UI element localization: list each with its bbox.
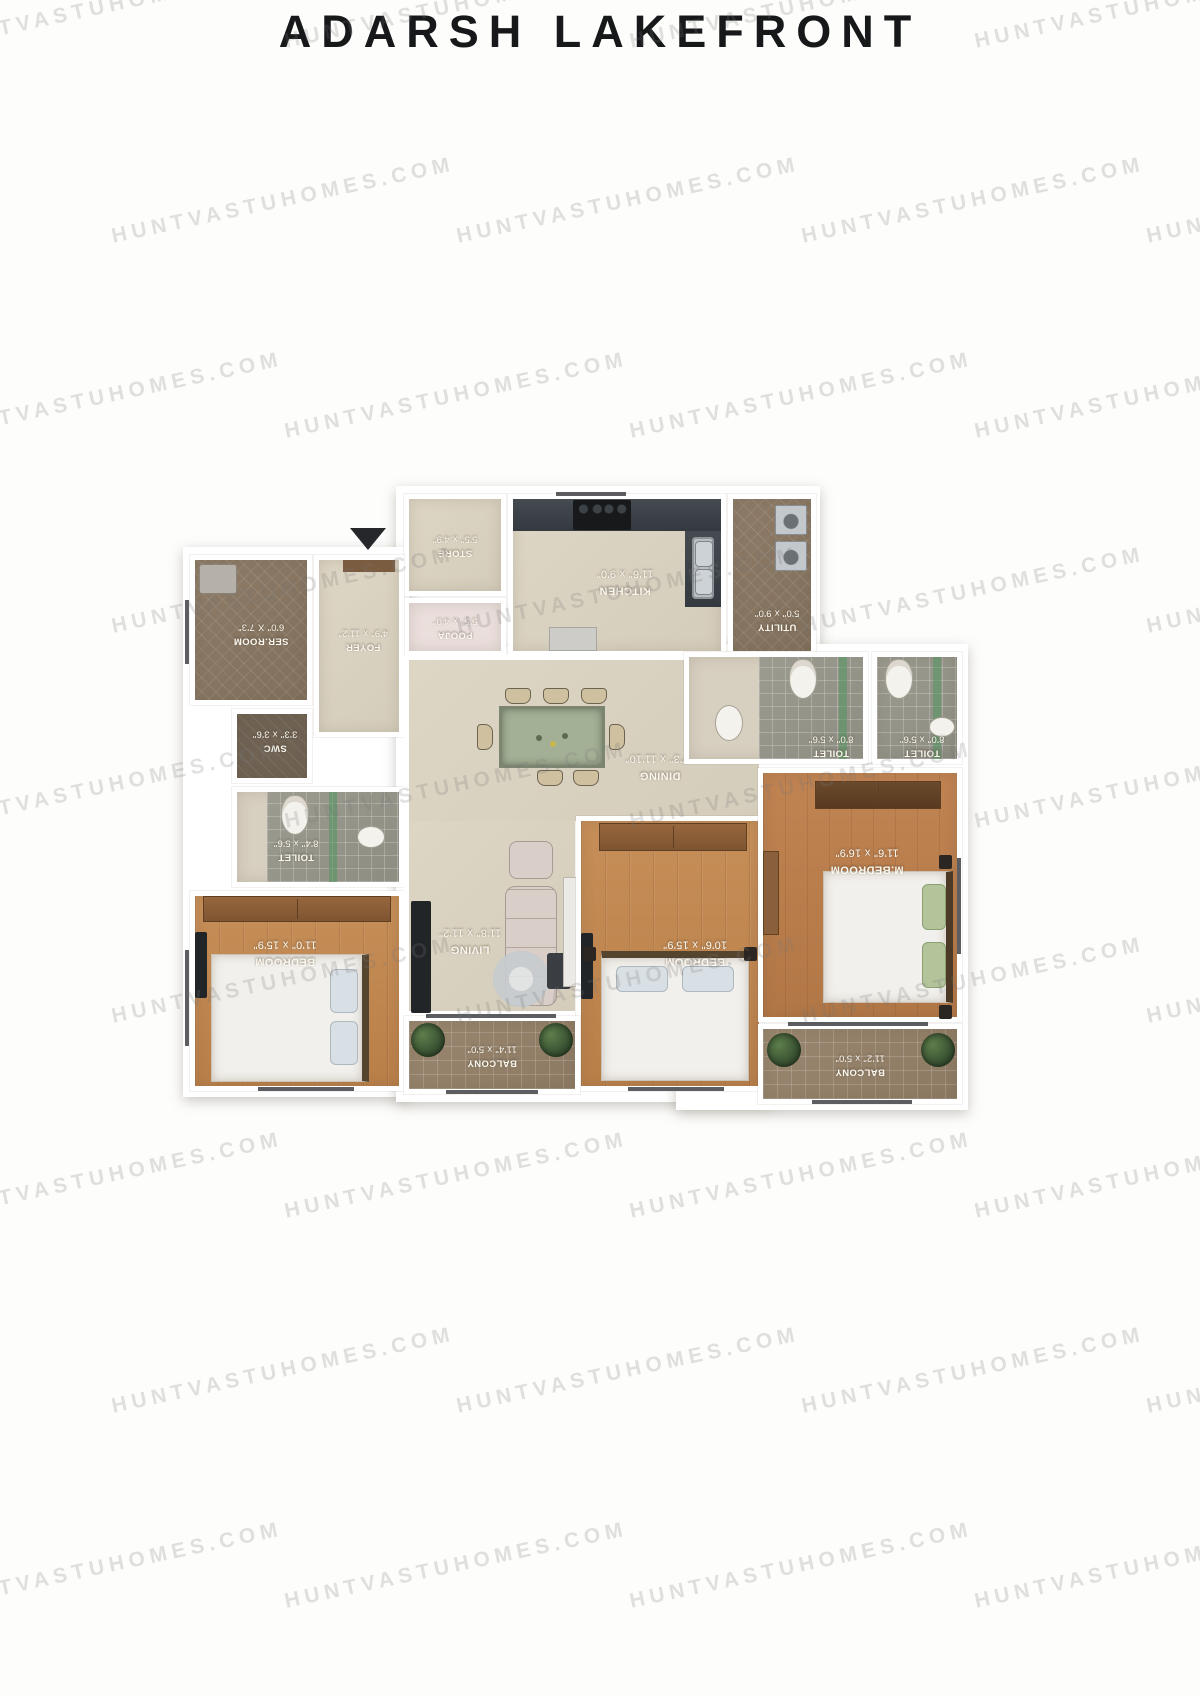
room-living-dims: 11'8" x 11'2"	[439, 925, 502, 942]
rug	[493, 951, 549, 1007]
dining-chair	[581, 688, 607, 704]
room-toilet-common-name: TOILET	[809, 745, 854, 759]
room-swc: SWC 3'3" x 3'6"	[232, 709, 312, 783]
dining-chair	[477, 724, 493, 750]
bed	[601, 951, 749, 1081]
pillow	[330, 1021, 358, 1065]
room-store-label: STORE 5'5" x 4'9"	[433, 531, 478, 560]
wardrobe	[203, 896, 391, 922]
kitchen-island	[549, 627, 597, 651]
window	[185, 950, 189, 1046]
tv-unit	[581, 933, 593, 999]
cot	[199, 564, 237, 594]
room-toilet-common-dims: 8'0" x 5'6"	[809, 731, 854, 745]
bed	[211, 954, 369, 1082]
tv-unit	[411, 901, 431, 1013]
room-pooja-name: POOJA	[433, 627, 478, 641]
dining-chair	[573, 770, 599, 786]
plant	[767, 1033, 801, 1067]
room-toilet-master-name: TOILET	[900, 745, 945, 759]
room-master-bedroom: M.BEDROOM 11'6" x 16'9"	[758, 768, 962, 1022]
room-pooja-label: POOJA 5'5" x 4'0"	[433, 613, 478, 642]
room-servant-dims: 6'0" X 7'3"	[234, 619, 289, 633]
room-balcony-right-dims: 11'2" x 5'0"	[835, 1050, 885, 1064]
room-toilet-common: TOILET 8'0" x 5'6"	[684, 652, 868, 764]
room-balcony-right-name: BALCONY	[835, 1064, 885, 1078]
room-servant-name: SER.ROOM	[234, 633, 289, 647]
room-bedroom-left-label: BEDROOM 11'0" x 15'9"	[253, 937, 316, 970]
room-utility-dims: 5'0" x 9'0"	[755, 605, 800, 619]
room-kitchen-name: KITCHEN	[597, 582, 654, 599]
sliding-door	[426, 1014, 556, 1018]
room-balcony-mid-dims: 11'4" x 5'0"	[467, 1041, 517, 1055]
table-decor	[536, 735, 542, 741]
room-dining-name: DINING	[625, 767, 695, 784]
pillow	[682, 966, 734, 992]
room-toilet-master-dims: 8'0" x 5'6"	[900, 731, 945, 745]
page-title: ADARSH LAKEFRONT	[0, 6, 1200, 58]
room-toilet-bedroom: TOILET 8'4" x 5'6"	[232, 787, 404, 887]
room-balcony-right: BALCONY 11'2" x 5'0"	[758, 1024, 962, 1104]
room-kitchen: KITCHEN 11'6" x 9'0"	[508, 494, 726, 656]
pillow	[616, 966, 668, 992]
room-master-bedroom-name: M.BEDROOM	[830, 861, 903, 878]
room-bedroom-left-dims: 11'0" x 15'9"	[253, 937, 316, 954]
room-swc-label: SWC 3'3" x 3'6"	[253, 726, 298, 755]
room-foyer-dims: 4'9" x 11'2"	[338, 625, 388, 639]
toilet-accent-stripe	[329, 792, 337, 882]
room-living-name: LIVING	[439, 941, 502, 958]
stove-icon	[573, 500, 631, 530]
dining-table	[499, 706, 605, 768]
washbasin	[357, 826, 385, 848]
room-toilet-bedroom-name: TOILET	[274, 849, 319, 863]
dresser	[763, 851, 779, 935]
nightstand	[939, 855, 952, 869]
lounge-chair	[509, 841, 553, 879]
dining-chair	[543, 688, 569, 704]
room-toilet-bedroom-dims: 8'4" x 5'6"	[274, 835, 319, 849]
room-utility-name: UTILITY	[755, 619, 800, 633]
room-balcony-mid-name: BALCONY	[467, 1055, 517, 1069]
dining-chair	[505, 688, 531, 704]
toilet-wc	[281, 795, 309, 835]
room-toilet-master: TOILET 8'0" x 5'6"	[872, 652, 962, 764]
pillow	[922, 884, 946, 930]
dining-chair	[537, 770, 563, 786]
room-foyer: FOYER 4'9" x 11'2"	[314, 555, 404, 737]
room-servant: SER.ROOM 6'0" X 7'3"	[190, 555, 312, 705]
plant	[921, 1033, 955, 1067]
room-bedroom-left-name: BEDROOM	[253, 953, 316, 970]
washing-machine	[775, 505, 807, 535]
room-pooja: POOJA 5'5" x 4'0"	[404, 598, 506, 656]
room-toilet-master-label: TOILET 8'0" x 5'6"	[900, 731, 945, 760]
nightstand	[939, 1005, 952, 1019]
window	[258, 1087, 354, 1091]
pillow	[922, 942, 946, 988]
room-master-bedroom-dims: 11'6" x 16'9"	[830, 845, 903, 862]
room-living-label: LIVING 11'8" x 11'2"	[439, 925, 502, 958]
nightstand	[583, 947, 596, 961]
room-toilet-common-label: TOILET 8'0" x 5'6"	[809, 731, 854, 760]
room-bedroom-mid-label: BEDROOM 10'6" x 15'9"	[663, 937, 727, 970]
room-servant-label: SER.ROOM 6'0" X 7'3"	[234, 619, 289, 648]
shoe-cabinet	[343, 560, 395, 572]
room-bedroom-mid: BEDROOM 10'6" x 15'9"	[576, 816, 764, 1091]
room-store: STORE 5'5" x 4'9"	[404, 494, 506, 596]
room-swc-dims: 3'3" x 3'6"	[253, 726, 298, 740]
room-foyer-label: FOYER 4'9" x 11'2"	[338, 625, 388, 654]
wardrobe	[599, 823, 747, 851]
room-store-dims: 5'5" x 4'9"	[433, 531, 478, 545]
room-bedroom-mid-dims: 10'6" x 15'9"	[663, 937, 727, 954]
kitchen-sink	[692, 537, 714, 599]
room-balcony-mid-label: BALCONY 11'4" x 5'0"	[467, 1041, 517, 1070]
plant	[539, 1023, 573, 1057]
room-master-bedroom-label: M.BEDROOM 11'6" x 16'9"	[830, 845, 903, 878]
room-foyer-name: FOYER	[338, 639, 388, 653]
pillow	[330, 969, 358, 1013]
window	[957, 858, 961, 954]
room-bedroom-mid-name: BEDROOM	[663, 953, 727, 970]
room-toilet-bedroom-label: TOILET 8'4" x 5'6"	[274, 835, 319, 864]
window	[628, 1087, 724, 1091]
room-utility: UTILITY 5'0" x 9'0"	[728, 494, 816, 656]
room-utility-label: UTILITY 5'0" x 9'0"	[755, 605, 800, 634]
room-kitchen-dims: 11'6" x 9'0"	[597, 566, 654, 583]
toilet-wc	[789, 659, 817, 699]
room-store-name: STORE	[433, 545, 478, 559]
room-balcony-right-label: BALCONY 11'2" x 5'0"	[835, 1050, 885, 1079]
bed	[823, 871, 953, 1003]
cabinet	[563, 877, 577, 987]
tv-unit	[195, 932, 207, 998]
toilet-wc	[885, 659, 913, 699]
window	[185, 600, 189, 664]
washbasin	[715, 705, 743, 741]
nightstand	[744, 947, 757, 961]
room-swc-name: SWC	[253, 740, 298, 754]
room-kitchen-label: KITCHEN 11'6" x 9'0"	[597, 566, 654, 599]
window	[556, 492, 626, 496]
sliding-door	[788, 1022, 928, 1026]
floor-plan: STORE 5'5" x 4'9" POOJA 5'5" x 4'0" KITC…	[0, 0, 1200, 1697]
plant	[411, 1023, 445, 1057]
wardrobe	[815, 781, 941, 809]
room-bedroom-left: BEDROOM 11'0" x 15'9"	[190, 891, 404, 1091]
room-balcony-mid: BALCONY 11'4" x 5'0"	[404, 1016, 580, 1094]
washing-machine	[775, 541, 807, 571]
room-living: LIVING 11'8" x 11'2"	[404, 821, 580, 1016]
window	[446, 1090, 538, 1094]
entry-arrow-icon	[350, 528, 386, 550]
room-pooja-dims: 5'5" x 4'0"	[433, 613, 478, 627]
window	[812, 1100, 912, 1104]
dining-chair	[609, 724, 625, 750]
